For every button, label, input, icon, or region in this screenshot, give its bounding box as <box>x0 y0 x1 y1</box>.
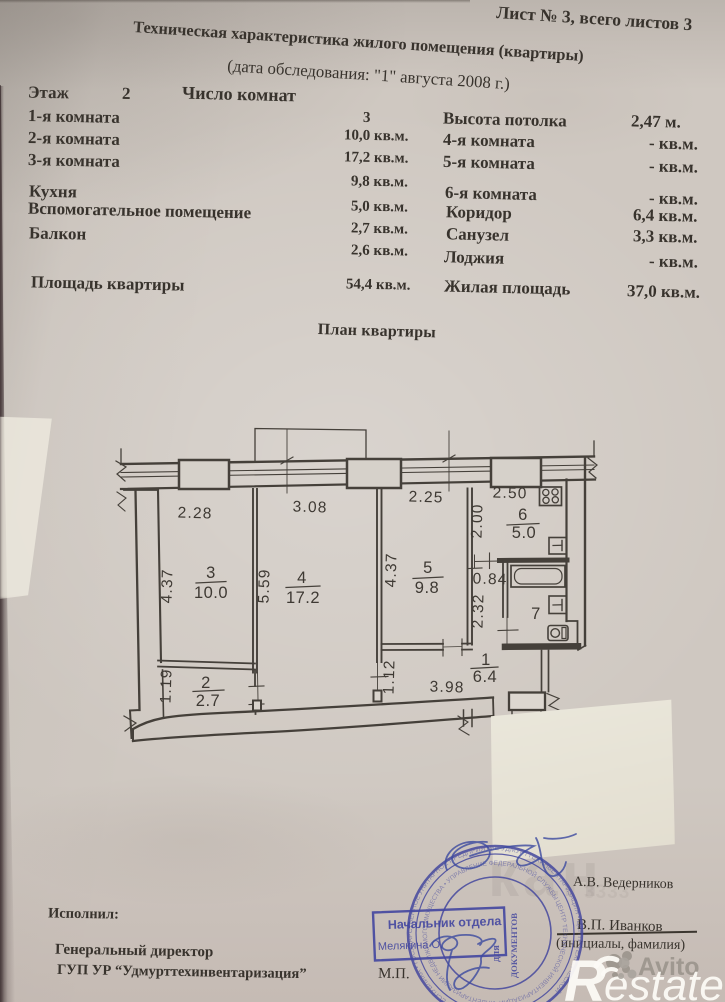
svg-text:R: R <box>564 949 606 1002</box>
svg-text:ИНВЕНТАРИЗАЦИИ НЕДВИЖИМОГО ИМУ: ИНВЕНТАРИЗАЦИИ НЕДВИЖИМОГО ИМУЩЕСТВА • У… <box>422 860 568 1002</box>
svg-text:для: для <box>491 945 502 962</box>
svg-text:ДОКУМЕНТОВ: ДОКУМЕНТОВ <box>509 913 519 978</box>
svg-text:Начальник отдела: Начальник отдела <box>388 914 503 932</box>
